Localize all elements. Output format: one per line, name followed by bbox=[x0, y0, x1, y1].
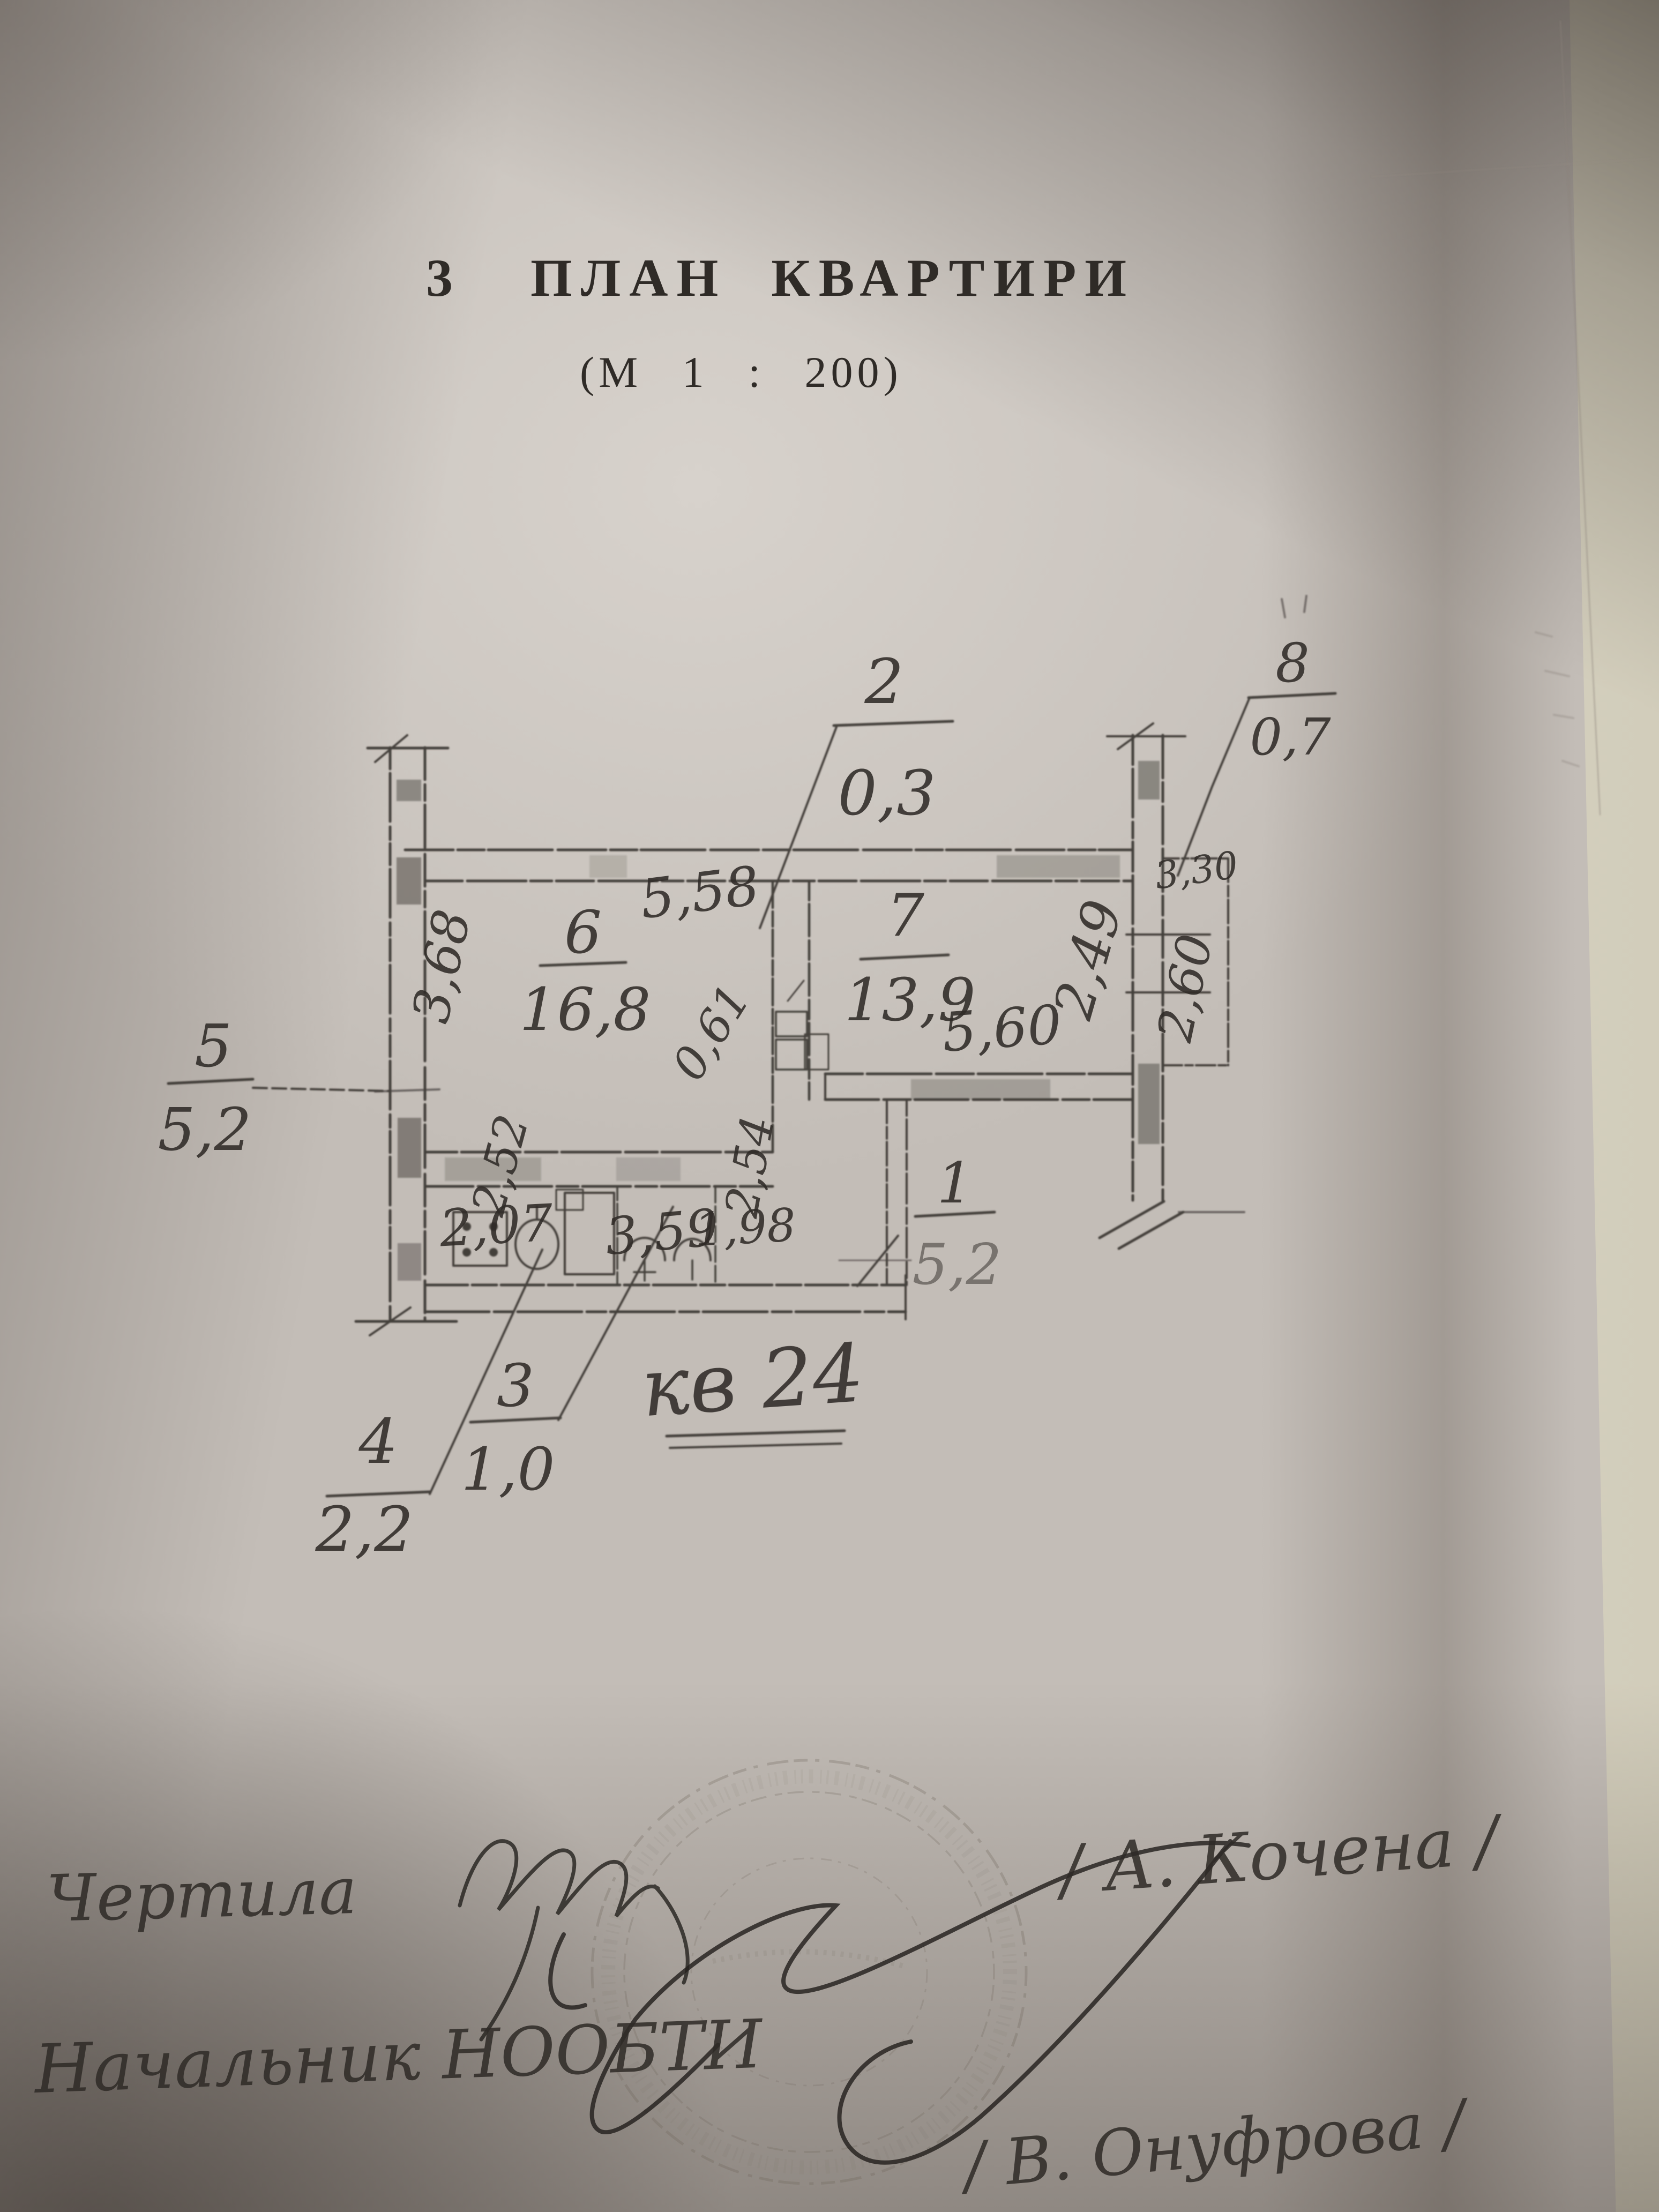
callout-5-number: 5 bbox=[195, 1012, 232, 1080]
drafted-name: / А. Кочена / bbox=[1052, 1801, 1506, 1910]
callout-1-number: 1 bbox=[937, 1150, 973, 1216]
chief-name: / В. Онуфрова / bbox=[956, 2085, 1474, 2203]
callout-8-value: 0,7 bbox=[1250, 708, 1331, 767]
top-exterior-wall bbox=[405, 850, 1132, 881]
paper-crease-marks bbox=[1372, 21, 1650, 814]
dim-balcony-right: 2,60 bbox=[1147, 930, 1224, 1047]
partition-room6-room7 bbox=[773, 881, 828, 1153]
drawing-layer: 3 ПЛАН КВАРТИРИ (М 1 : 200) bbox=[0, 0, 1659, 2212]
footer-block: Чертила / А. Кочена / Начальник НООБТИ /… bbox=[32, 1801, 1506, 2203]
drafted-label: Чертила bbox=[46, 1854, 358, 1937]
callout-2-value: 0,3 bbox=[838, 758, 936, 829]
page-title: ПЛАН КВАРТИРИ bbox=[530, 248, 1135, 308]
dim-bath: 1,98 bbox=[693, 1199, 797, 1257]
dim-room6-top: 5,58 bbox=[637, 854, 763, 931]
room-6-area: 16,8 bbox=[520, 975, 651, 1044]
room-7-number: 7 bbox=[887, 881, 924, 950]
callout-8-number: 8 bbox=[1275, 632, 1310, 694]
dim-vent: 0,61 bbox=[662, 975, 761, 1089]
apartment-number-label: кв 24 bbox=[638, 1327, 867, 1436]
round-stamp bbox=[592, 1760, 1026, 2184]
title-block: 3 ПЛАН КВАРТИРИ (М 1 : 200) bbox=[426, 248, 1135, 397]
callout-3-value: 1,0 bbox=[461, 1435, 555, 1504]
title-scale: (М 1 : 200) bbox=[580, 348, 902, 397]
dim-right-wall: 2,49 bbox=[1042, 893, 1135, 1026]
title-number: 3 bbox=[426, 248, 461, 308]
callout-4-value: 2,2 bbox=[315, 1494, 414, 1566]
scanned-floor-plan-page: 3 ПЛАН КВАРТИРИ (М 1 : 200) bbox=[0, 0, 1659, 2212]
callout-5-value: 5,2 bbox=[158, 1095, 252, 1164]
dim-room6-left: 3,68 bbox=[401, 905, 483, 1028]
corridor-wall bbox=[825, 1074, 1132, 1100]
room-6-number: 6 bbox=[564, 898, 602, 967]
callout-3-number: 3 bbox=[497, 1351, 534, 1420]
callout-1-value: 5,2 bbox=[913, 1232, 1002, 1297]
callout-4-number: 4 bbox=[358, 1406, 398, 1478]
callout-2-number: 2 bbox=[864, 646, 903, 718]
